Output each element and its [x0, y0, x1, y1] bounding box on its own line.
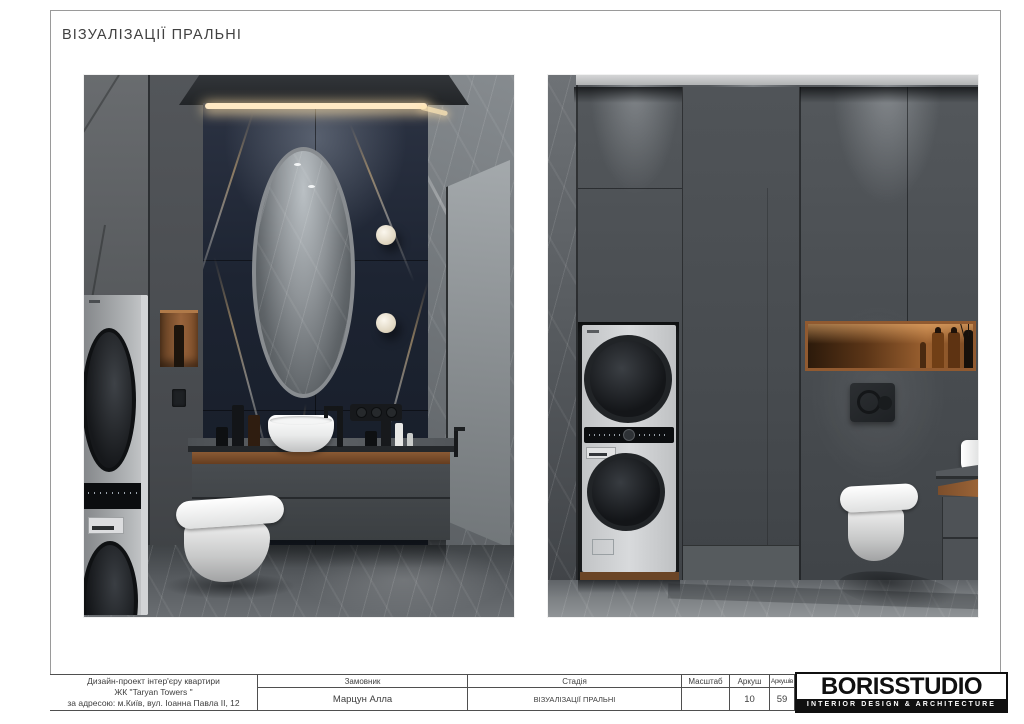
led-strip	[205, 103, 427, 109]
socket-block	[350, 404, 402, 421]
oval-mirror	[252, 147, 355, 398]
drawer-slot	[589, 453, 607, 456]
control-dial	[623, 429, 635, 441]
door-panel	[446, 160, 510, 548]
washer-door	[84, 541, 138, 615]
amber-bottle	[932, 332, 944, 368]
drawer-slot	[92, 526, 114, 530]
spotlight-reflection	[308, 185, 315, 188]
scale-cell: Масштаб	[682, 675, 730, 710]
diffuser-reed	[971, 321, 976, 338]
stage-label: Стадія	[468, 675, 681, 688]
detergent-drawer	[88, 517, 124, 534]
sheets-total-value: 59	[770, 688, 794, 710]
wood-niche	[160, 310, 198, 367]
sheet-number-cell: Аркуш 10	[730, 675, 770, 710]
cabinet-seam	[800, 87, 801, 580]
lg-logo	[587, 330, 599, 333]
dryer-door	[84, 328, 136, 472]
project-line-2: ЖК "Taryan Towers "	[50, 687, 257, 698]
amber-bottle	[920, 342, 926, 368]
stone-wall-strip	[548, 75, 576, 617]
customer-label: Замовник	[258, 675, 467, 688]
stage-cell: Стадія ВІЗУАЛІЗАЦІЇ ПРАЛЬНІ	[468, 675, 682, 710]
vanity-countertop	[936, 465, 978, 479]
logo-name: BORISSTUDIO	[797, 674, 1006, 699]
sheets-total-cell: Аркушів 59	[770, 675, 795, 710]
wood-sill	[580, 572, 679, 580]
wood-niche	[805, 321, 976, 371]
flush-button-small	[878, 396, 892, 410]
socket-outlet	[371, 407, 382, 418]
niche-bottle	[174, 325, 184, 367]
light-switch	[172, 389, 186, 407]
stage-value: ВІЗУАЛІЗАЦІЇ ПРАЛЬНІ	[468, 688, 681, 710]
kick-panel	[683, 545, 799, 581]
render-bathroom-view	[84, 75, 514, 617]
bottle-cap	[951, 327, 957, 333]
logo-cell: BORISSTUDIO INTERIOR DESIGN & ARCHITECTU…	[795, 675, 1002, 710]
wall-hung-toilet	[170, 495, 284, 587]
render-laundry-wall-view	[548, 75, 978, 617]
scale-value	[682, 688, 729, 710]
toilet-bowl	[848, 507, 904, 561]
sheets-total-label: Аркушів	[770, 675, 794, 688]
washer-door	[587, 453, 665, 531]
control-panel	[584, 427, 674, 443]
tall-cabinet-door	[682, 87, 800, 580]
wood-trim	[192, 452, 450, 464]
dryer-door	[584, 335, 672, 423]
toilet-lid	[175, 494, 285, 529]
toilet-lid	[839, 483, 918, 513]
page-title: ВІЗУАЛІЗАЦІЇ ПРАЛЬНІ	[62, 27, 242, 43]
cosmetic-bottle	[232, 405, 244, 446]
mirror-reflection	[256, 151, 351, 394]
service-panel	[592, 539, 614, 555]
flush-plate	[850, 383, 895, 422]
cabinet-seam	[907, 87, 908, 321]
amber-bottle	[248, 415, 260, 446]
small-bottle	[407, 433, 413, 446]
wall-hung-toilet	[838, 481, 918, 573]
borisstudio-logo: BORISSTUDIO INTERIOR DESIGN & ARCHITECTU…	[795, 672, 1008, 713]
washer-side-panel	[141, 295, 148, 615]
socket-outlet	[356, 407, 367, 418]
vanity	[936, 435, 978, 585]
customer-value: Марцун Алла	[258, 688, 467, 710]
presentation-sheet: ВІЗУАЛІЗАЦІЇ ПРАЛЬНІ	[0, 0, 1024, 724]
faucet	[337, 406, 343, 447]
cosmetic-jar	[216, 427, 228, 446]
ceiling	[179, 75, 469, 105]
lg-washtower	[582, 325, 676, 572]
toilet-bowl	[184, 520, 270, 582]
socket-outlet	[386, 407, 397, 418]
spotlight-reflection	[294, 163, 301, 166]
cosmetic-bottle	[381, 419, 391, 446]
wood-trim	[938, 479, 978, 497]
washer-shadow	[578, 580, 680, 593]
sheet-value: 10	[730, 688, 769, 710]
faucet-outlet	[324, 406, 328, 418]
door-seam	[767, 188, 768, 545]
pump-bottle	[395, 423, 403, 446]
vanity-cabinet	[942, 497, 978, 580]
door-handle	[454, 427, 458, 457]
drawer-seam	[943, 537, 978, 539]
sink-rim	[270, 416, 332, 425]
wall-sconce	[376, 225, 396, 245]
cosmetic-jar	[365, 431, 377, 446]
amber-bottle	[948, 332, 960, 368]
sheet-label: Аркуш	[730, 675, 769, 688]
stacked-washer-dryer	[84, 295, 148, 615]
door-handle-top	[454, 427, 465, 431]
control-icons	[88, 492, 138, 494]
marble-veins	[548, 75, 576, 617]
bottle-cap	[935, 327, 941, 333]
diffuser-reed	[968, 321, 969, 336]
lg-logo	[89, 300, 100, 303]
logo-tagline: INTERIOR DESIGN & ARCHITECTURE	[797, 699, 1006, 711]
project-description-cell: Дизайн-проект інтер'єру квартири ЖК "Tar…	[50, 675, 258, 710]
control-panel	[84, 483, 142, 509]
wall-sconce	[376, 313, 396, 333]
customer-cell: Замовник Марцун Алла	[258, 675, 468, 710]
scale-label: Масштаб	[682, 675, 729, 688]
title-block: Дизайн-проект інтер'єру квартири ЖК "Tar…	[50, 674, 1002, 711]
project-line-1: Дизайн-проект інтер'єру квартири	[50, 676, 257, 687]
project-line-3: за адресою: м.Київ, вул. Іоанна Павла II…	[50, 698, 257, 709]
